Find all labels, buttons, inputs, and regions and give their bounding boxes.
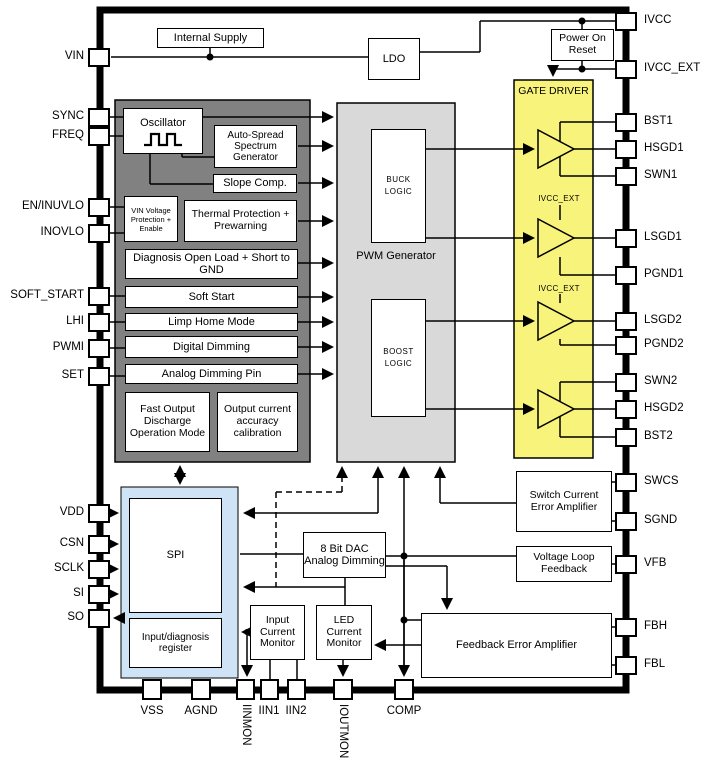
feedback-error-amplifier-label: Feedback Error Amplifier: [456, 639, 577, 651]
ldo-block: LDO: [368, 38, 420, 80]
led-current-monitor-block: LED Current Monitor: [316, 605, 372, 660]
pin-pgnd2: [615, 336, 637, 355]
diagnosis-block: Diagnosis Open Load + Short to GND: [125, 249, 298, 279]
pin-set: [88, 367, 110, 386]
input-diagnosis-register-block: Input/diagnosis register: [129, 618, 222, 668]
power-on-reset-label: Power On Reset: [552, 33, 613, 57]
pin-hsgd2: [615, 400, 637, 419]
thermal-protection-label: Thermal Protection + Prewarning: [185, 209, 296, 233]
pin-label-swcs: SWCS: [644, 475, 679, 487]
gate-driver-title: GATE DRIVER: [514, 85, 593, 115]
oscillator-label: Oscillator: [140, 117, 186, 129]
pin-label-lhi: LHI: [0, 315, 84, 327]
pin-label-en-inuvlo: EN/INUVLO: [0, 200, 84, 212]
vin-protection-label: VIN Voltage Protection + Enable: [125, 206, 177, 233]
boost-logic-label: BOOST LOGIC: [372, 346, 425, 370]
spi-label: SPI: [167, 549, 185, 561]
pin-vin: [88, 48, 110, 67]
pin-ivcc: [615, 12, 637, 31]
power-on-reset-block: Power On Reset: [551, 29, 614, 61]
pin-soft-start: [88, 287, 110, 306]
ivcc-ext-net-label-2: IVCC_EXT: [524, 284, 594, 293]
output-calibration-label: Output current accuracy calibration: [218, 404, 297, 439]
pin-lsgd1: [615, 229, 637, 248]
pwm-generator-title: PWM Generator: [337, 250, 455, 282]
soft-start-label: Soft Start: [189, 291, 235, 303]
pin-label-sclk: SCLK: [0, 562, 84, 574]
auto-spread-label: Auto-Spread Spectrum Generator: [215, 130, 296, 164]
input-diagnosis-register-label: Input/diagnosis register: [130, 632, 221, 654]
pin-label-sgnd: SGND: [644, 514, 677, 526]
pin-label-iin2: IIN2: [266, 705, 326, 717]
pin-label-inovlo: INOVLO: [0, 226, 84, 238]
pin-iin2: [287, 679, 306, 700]
pin-label-comp: COMP: [364, 705, 444, 717]
pin-lhi: [88, 313, 110, 332]
pin-label-so: SO: [0, 611, 84, 623]
switch-current-error-amplifier-label: Switch Current Error Amplifier: [517, 490, 611, 514]
ic-block-diagram: Internal Supply LDO Power On Reset GATE …: [0, 0, 702, 768]
slope-comp-block: Slope Comp.: [213, 174, 297, 193]
pin-label-hsgd1: HSGD1: [644, 142, 684, 154]
output-calibration-block: Output current accuracy calibration: [217, 392, 298, 452]
digital-dimming-label: Digital Dimming: [173, 341, 250, 353]
voltage-loop-feedback-block: Voltage Loop Feedback: [516, 546, 612, 582]
soft-start-block: Soft Start: [125, 286, 298, 308]
pin-label-fbh: FBH: [644, 620, 667, 632]
pin-label-bst1: BST1: [644, 115, 673, 127]
pin-inovlo: [88, 224, 110, 243]
pin-sclk: [88, 560, 110, 579]
pin-si: [88, 585, 110, 604]
pin-vdd: [88, 504, 110, 523]
pin-label-csn: CSN: [0, 537, 84, 549]
limp-home-label: Limp Home Mode: [168, 316, 255, 328]
pwm-generator-label: PWM Generator: [356, 250, 435, 262]
fast-discharge-label: Fast Output Discharge Operation Mode: [126, 404, 209, 439]
pin-fbh: [615, 618, 637, 637]
pin-fbl: [615, 656, 637, 675]
pin-iinmon: [236, 679, 255, 700]
pin-lsgd2: [615, 312, 637, 331]
led-current-monitor-label: LED Current Monitor: [317, 615, 371, 650]
pin-vfb: [615, 555, 637, 574]
pin-label-vdd: VDD: [0, 506, 84, 518]
thermal-protection-block: Thermal Protection + Prewarning: [184, 200, 297, 242]
slope-comp-label: Slope Comp.: [223, 177, 287, 189]
pin-label-pwmi: PWMI: [0, 341, 84, 353]
pin-label-ioutmon: IOUTMON: [337, 704, 349, 758]
input-current-monitor-block: Input Current Monitor: [250, 605, 305, 660]
pin-label-swn2: SWN2: [644, 375, 677, 387]
gate-driver-label: GATE DRIVER: [518, 85, 588, 97]
pin-en-inuvlo: [88, 198, 110, 217]
pin-label-hsgd2: HSGD2: [644, 402, 684, 414]
auto-spread-block: Auto-Spread Spectrum Generator: [214, 125, 297, 168]
diagnosis-label: Diagnosis Open Load + Short to GND: [126, 252, 297, 277]
pin-label-soft-start: SOFT_START: [0, 289, 84, 301]
pin-label-freq: FREQ: [0, 129, 84, 141]
internal-supply-block: Internal Supply: [157, 28, 264, 48]
pin-iin1: [260, 679, 279, 700]
switch-current-error-amplifier-block: Switch Current Error Amplifier: [516, 471, 612, 532]
pin-swn1: [615, 167, 637, 186]
pin-label-lsgd1: LSGD1: [644, 231, 682, 243]
pin-pgnd1: [615, 266, 637, 285]
pin-csn: [88, 535, 110, 554]
pin-label-ivcc-ext: IVCC_EXT: [644, 62, 700, 74]
pin-label-ivcc: IVCC: [644, 14, 671, 26]
pin-label-sync: SYNC: [0, 110, 84, 122]
pin-bst1: [615, 113, 637, 132]
pin-label-set: SET: [0, 369, 84, 381]
voltage-loop-feedback-label: Voltage Loop Feedback: [517, 552, 611, 576]
fast-discharge-block: Fast Output Discharge Operation Mode: [125, 392, 210, 452]
boost-logic-block: BOOST LOGIC: [371, 299, 426, 417]
pin-label-swn1: SWN1: [644, 169, 677, 181]
pin-ivcc-ext: [615, 60, 637, 79]
limp-home-block: Limp Home Mode: [125, 313, 298, 331]
pin-swcs: [615, 473, 637, 492]
pin-vss: [142, 679, 162, 700]
pin-label-lsgd2: LSGD2: [644, 314, 682, 326]
oscillator-block: Oscillator: [123, 108, 203, 154]
input-current-monitor-label: Input Current Monitor: [251, 615, 304, 650]
digital-dimming-block: Digital Dimming: [125, 336, 298, 358]
pin-swn2: [615, 373, 637, 392]
pin-ioutmon: [333, 679, 353, 700]
internal-supply-label: Internal Supply: [174, 32, 247, 44]
buck-logic-label: BUCK LOGIC: [372, 174, 425, 198]
ldo-label: LDO: [383, 53, 406, 65]
pin-label-vfb: VFB: [644, 557, 666, 569]
pin-label-pgnd2: PGND2: [644, 338, 684, 350]
pin-sgnd: [615, 512, 637, 531]
pin-bst2: [615, 428, 637, 447]
pin-freq: [88, 127, 110, 146]
pin-label-si: SI: [0, 587, 84, 599]
analog-dimming-label: Analog Dimming Pin: [162, 368, 262, 380]
pin-label-vin: VIN: [0, 50, 84, 62]
pin-label-bst2: BST2: [644, 430, 673, 442]
pin-sync: [88, 108, 110, 127]
analog-dimming-block: Analog Dimming Pin: [125, 364, 298, 384]
dac-analog-dimming-block: 8 Bit DAC Analog Dimming: [303, 532, 386, 578]
feedback-error-amplifier-block: Feedback Error Amplifier: [421, 613, 612, 678]
pin-comp: [394, 679, 414, 700]
pin-label-pgnd1: PGND1: [644, 268, 684, 280]
spi-block: SPI: [129, 498, 222, 613]
ivcc-ext-net-label-1: IVCC_EXT: [524, 194, 594, 203]
square-wave-icon: [141, 130, 185, 148]
pin-pwmi: [88, 339, 110, 358]
pin-label-agnd: AGND: [161, 705, 241, 717]
pin-hsgd1: [615, 140, 637, 159]
pin-so: [88, 609, 110, 628]
pin-label-fbl: FBL: [644, 658, 665, 670]
buck-logic-block: BUCK LOGIC: [371, 129, 426, 243]
dac-analog-dimming-label: 8 Bit DAC Analog Dimming: [304, 543, 385, 568]
pin-agnd: [191, 679, 211, 700]
vin-protection-block: VIN Voltage Protection + Enable: [124, 196, 178, 242]
